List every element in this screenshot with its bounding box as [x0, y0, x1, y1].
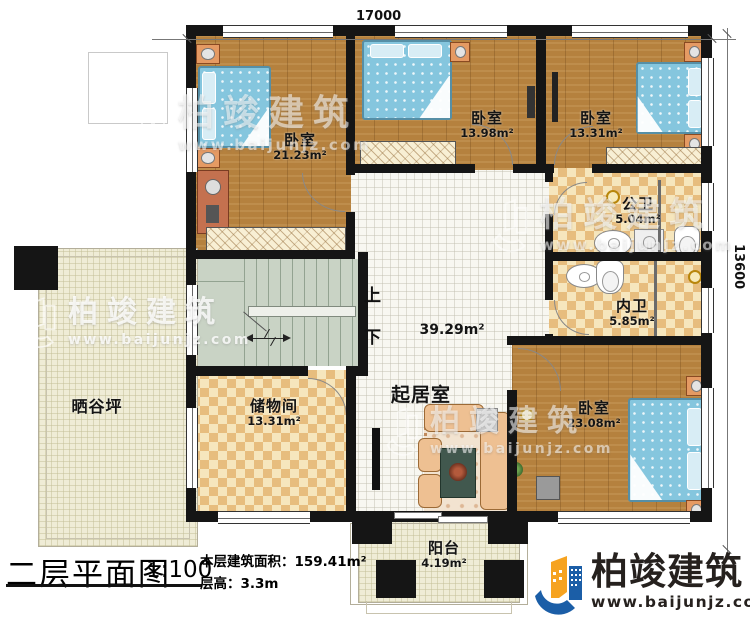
- sofa-back: [424, 404, 484, 432]
- room-label-storage: 储物间 13.31m²: [247, 398, 300, 428]
- wall: [196, 250, 346, 259]
- tv-cabinet: [536, 476, 560, 500]
- room-label-ensuite-bath: 内卫 5.85m²: [609, 298, 654, 328]
- room-label-living-area: 39.29m²: [419, 322, 484, 338]
- stair-arrow-right: [283, 334, 291, 342]
- room-area: 13.31m²: [569, 127, 622, 140]
- terrace-door: [186, 285, 198, 355]
- room-name: 公卫: [622, 196, 654, 213]
- nightstand: [196, 44, 220, 64]
- window: [701, 288, 714, 333]
- wall: [536, 164, 554, 173]
- wall: [592, 164, 712, 173]
- room-label-balcony: 阳台 4.19m²: [421, 540, 466, 570]
- room-area: 5.04m²: [615, 213, 660, 226]
- bed: [362, 40, 452, 120]
- floor-height-value: 3.3m: [241, 576, 279, 592]
- floor-height-label: 层高：: [200, 576, 241, 592]
- room-name: 卧室: [578, 400, 610, 417]
- window: [186, 88, 198, 172]
- room-area: 23.08m²: [567, 417, 620, 430]
- stairs-up-label: 上: [364, 281, 381, 306]
- window: [218, 511, 310, 524]
- company-logo-icon: [533, 552, 585, 616]
- room-name: 储物间: [250, 398, 298, 415]
- window: [701, 388, 714, 488]
- window: [395, 25, 507, 38]
- coffee-table: [440, 448, 476, 498]
- room-label-terrace: 晒谷坪: [71, 398, 122, 416]
- wall: [346, 366, 368, 376]
- wall-pier: [352, 511, 392, 544]
- wardrobe: [206, 227, 346, 252]
- room-area: 13.98m²: [460, 127, 513, 140]
- dimension-right-label: 13600: [731, 240, 746, 293]
- room-label-bedroom4: 卧室 23.08m²: [567, 400, 620, 430]
- desk: [197, 170, 229, 234]
- nightstand: [196, 148, 220, 168]
- side-table: [476, 408, 498, 432]
- company-logo: 柏竣建筑 www.baijunjz.com: [533, 552, 750, 616]
- floor-plan-canvas: 上 下: [0, 0, 750, 625]
- wall-pier: [488, 511, 528, 544]
- room-area: 5.85m²: [609, 315, 654, 328]
- tv: [552, 72, 558, 122]
- room-name: 卧室: [284, 132, 316, 149]
- nightstand: [450, 42, 470, 62]
- room-label-public-bath: 公卫 5.04m²: [615, 196, 660, 226]
- wall: [358, 252, 368, 366]
- window: [701, 58, 714, 146]
- room-area: 39.29m²: [419, 322, 484, 338]
- room-area: 21.23m²: [273, 149, 326, 162]
- stairs-down-label: 下: [364, 323, 381, 348]
- wall: [513, 164, 536, 173]
- wall: [536, 25, 546, 173]
- balcony-step: [366, 601, 512, 614]
- wall: [545, 252, 712, 261]
- company-website: www.baijunjz.com: [591, 593, 750, 611]
- column: [376, 560, 416, 598]
- room-name: 晒谷坪: [71, 398, 122, 416]
- column: [14, 246, 58, 290]
- towel-hook: [688, 270, 702, 284]
- room-label-bedroom2: 卧室 13.98m²: [460, 110, 513, 140]
- stair-landing-line: [196, 281, 244, 282]
- company-name: 柏竣建筑: [591, 552, 750, 593]
- room-name: 阳台: [428, 540, 460, 557]
- toilet: [596, 260, 624, 294]
- wall: [545, 173, 553, 182]
- floor-area-value: 159.41m²: [295, 554, 367, 570]
- armchair: [418, 474, 442, 508]
- room-label-living: 起居室: [391, 385, 451, 407]
- window: [186, 408, 198, 488]
- room-name: 卧室: [580, 110, 612, 127]
- room-name: 内卫: [616, 298, 648, 315]
- tv: [372, 428, 380, 490]
- window: [558, 511, 690, 524]
- floor-height-line: 层高：3.3m: [200, 572, 278, 592]
- wall: [346, 376, 356, 511]
- roof-outline: [88, 52, 168, 124]
- room-area: 13.31m²: [247, 415, 300, 428]
- room-name: 起居室: [391, 385, 451, 407]
- wall: [346, 25, 355, 175]
- room-area: 4.19m²: [421, 557, 466, 570]
- towel-hook: [520, 408, 534, 422]
- window: [701, 183, 714, 231]
- title-underline: [6, 584, 202, 587]
- balcony-slider-door: [394, 512, 442, 519]
- room-label-bedroom3: 卧室 13.31m²: [569, 110, 622, 140]
- floor-area-line: 本层建筑面积：159.41m²: [200, 550, 367, 570]
- window: [572, 25, 688, 38]
- room-label-bedroom1: 卧室 21.23m²: [273, 132, 326, 162]
- room-name: 卧室: [471, 110, 503, 127]
- dimension-top-label: 17000: [352, 9, 405, 24]
- bed: [628, 398, 706, 502]
- tv: [527, 86, 535, 118]
- bed: [198, 66, 271, 148]
- floor-area-label: 本层建筑面积：: [200, 554, 295, 570]
- wall: [507, 390, 517, 511]
- wall: [346, 212, 355, 259]
- dimension-line-right: [727, 28, 728, 556]
- dimension-line-top: [152, 39, 736, 40]
- stair-handrail: [248, 306, 356, 317]
- wall: [196, 366, 308, 376]
- column: [484, 560, 524, 598]
- wall: [507, 336, 712, 345]
- armchair: [418, 438, 442, 472]
- stair-direction-line: [252, 338, 284, 339]
- stair-arrow-left: [245, 334, 253, 342]
- wall: [355, 164, 475, 173]
- balcony-slider-door: [438, 516, 488, 523]
- window: [223, 25, 333, 38]
- bed: [636, 62, 706, 134]
